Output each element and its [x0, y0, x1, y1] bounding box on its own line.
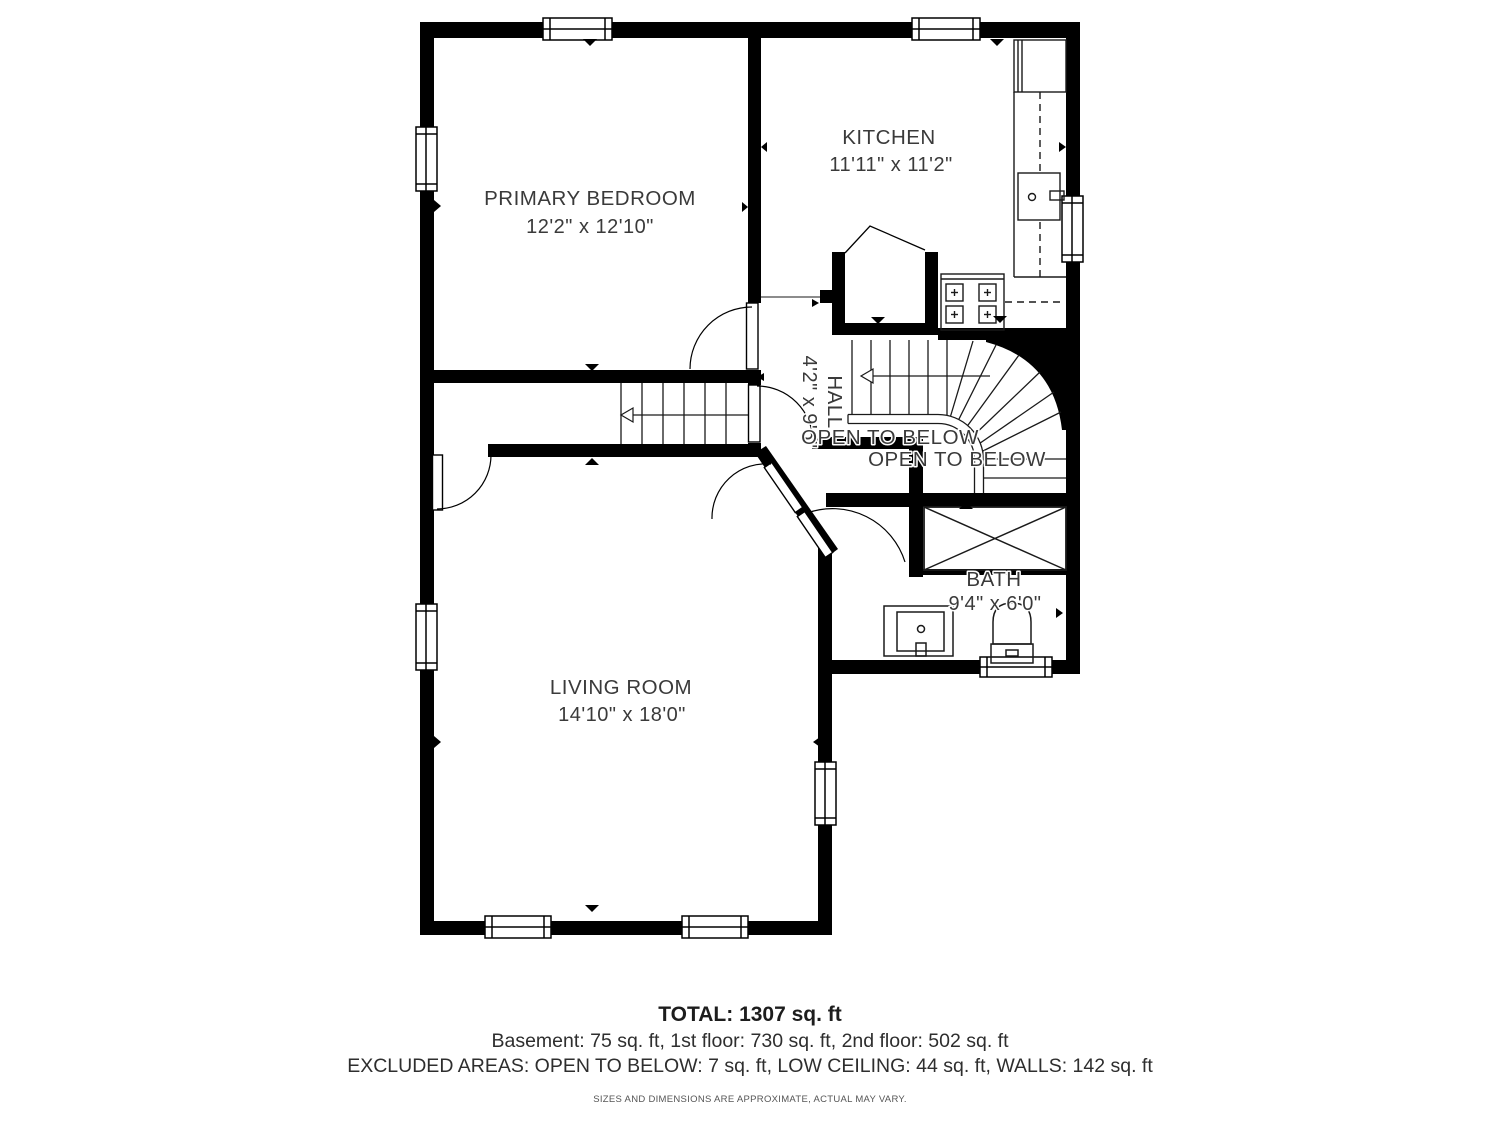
window-living-bottom-right — [682, 916, 748, 938]
label-hall: HALL — [823, 375, 846, 428]
footer-summary: TOTAL: 1307 sq. ft Basement: 75 sq. ft, … — [0, 1003, 1500, 1105]
bath-vanity-sink — [884, 606, 953, 656]
dims-living-room: 14'10" x 18'0" — [558, 704, 686, 726]
window-kitchen-top — [912, 18, 980, 40]
label-open-to-below-2: OPEN TO BELOW — [868, 448, 1046, 471]
dims-primary-bedroom: 12'2" x 12'10" — [526, 216, 654, 238]
floor-plan-page: PRIMARY BEDROOM 12'2" x 12'10" KITCHEN 1… — [0, 0, 1500, 1125]
window-bedroom-top — [543, 18, 612, 40]
doors — [433, 226, 926, 562]
bathtub — [924, 507, 1066, 570]
label-open-to-below-1: OPEN TO BELOW — [801, 426, 979, 449]
label-bath: BATH — [966, 568, 1021, 591]
footer-excluded-areas: EXCLUDED AREAS: OPEN TO BELOW: 7 sq. ft,… — [0, 1055, 1500, 1078]
window-kitchen-right — [1062, 196, 1083, 262]
footer-floor-areas: Basement: 75 sq. ft, 1st floor: 730 sq. … — [0, 1030, 1500, 1053]
bedroom-door — [690, 303, 758, 369]
floor-plan-drawing: PRIMARY BEDROOM 12'2" x 12'10" KITCHEN 1… — [0, 0, 1500, 1125]
room-labels: PRIMARY BEDROOM 12'2" x 12'10" KITCHEN 1… — [484, 126, 1046, 726]
window-living-right — [815, 762, 836, 825]
straight-stair-treads — [621, 383, 726, 444]
kitchen-sink — [1018, 173, 1064, 220]
window-living-bottom-left — [485, 916, 551, 938]
stove — [941, 274, 1004, 330]
window-bedroom-left — [416, 127, 437, 191]
refrigerator — [1014, 40, 1066, 92]
label-kitchen: KITCHEN — [842, 126, 935, 149]
curved-stair-arrow — [861, 369, 990, 383]
dims-kitchen: 11'11" x 11'2" — [829, 154, 952, 176]
kitchen-fixtures — [761, 40, 1066, 330]
closet-bifold-door — [845, 226, 925, 253]
window-living-left — [416, 604, 437, 670]
footer-disclaimer: SIZES AND DIMENSIONS ARE APPROXIMATE, AC… — [0, 1094, 1500, 1105]
living-room-door-top — [433, 455, 492, 510]
dims-bath: 9'4" x 6'0" — [949, 593, 1042, 615]
label-living-room: LIVING ROOM — [550, 676, 692, 699]
label-primary-bedroom: PRIMARY BEDROOM — [484, 187, 696, 210]
footer-total-area: TOTAL: 1307 sq. ft — [0, 1003, 1500, 1027]
living-room-diagonal-door — [712, 462, 803, 519]
